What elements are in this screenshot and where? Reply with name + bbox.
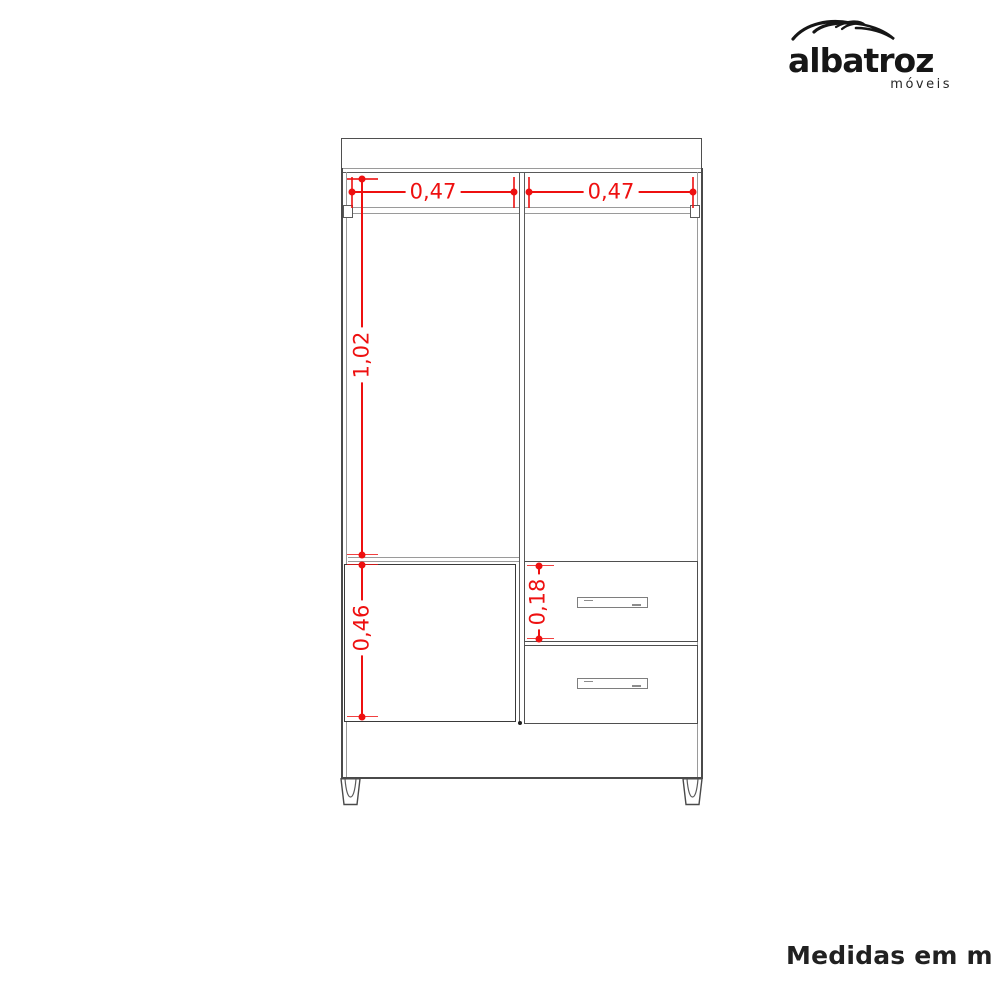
units-caption: Medidas em m (786, 941, 993, 970)
shelf-bottom-line (348, 561, 519, 562)
right-foot (681, 778, 704, 807)
dim-label-right-width: 0,47 (584, 181, 639, 204)
wardrobe-dimension-diagram: albatroz móveis (0, 0, 1000, 1000)
left-rod-bottom-line (348, 213, 519, 214)
brand-logo: albatroz móveis (788, 18, 952, 91)
dim-label-hanging-height: 1,02 (351, 328, 374, 383)
dim-dot (359, 714, 366, 721)
dim-label-left-width: 0,47 (406, 181, 461, 204)
left-wall-outer-line (341, 168, 343, 778)
bird-swoosh-icon (790, 18, 898, 42)
logo-name: albatroz (788, 44, 952, 77)
base-bottom-line (341, 777, 703, 779)
right-wall-outer-line (701, 168, 703, 778)
dim-dot (536, 636, 543, 643)
handle-notch (584, 600, 593, 601)
right-rod-top-line (525, 207, 697, 208)
top-drawer-handle (577, 597, 648, 608)
dim-dot (526, 189, 533, 196)
shelf-top-line (348, 557, 519, 558)
top-panel-bottom-line (341, 168, 702, 169)
dim-dot (511, 189, 518, 196)
dim-label-drawer-height: 0,18 (527, 575, 550, 630)
handle-notch (584, 681, 593, 682)
top-panel (341, 138, 702, 169)
dim-dot (359, 562, 366, 569)
dim-dot (359, 552, 366, 559)
center-divider-left-line (519, 172, 520, 558)
door-pivot-dot (518, 721, 522, 725)
cabinet-ceiling-line (341, 172, 702, 173)
dim-label-door-height: 0,46 (351, 601, 374, 656)
dim-dot (349, 189, 356, 196)
handle-notch (632, 604, 641, 605)
dim-dot (536, 563, 543, 570)
handle-notch (632, 685, 641, 686)
left-rod-top-line (348, 207, 519, 208)
bottom-drawer-handle (577, 678, 648, 689)
left-foot (339, 778, 362, 807)
center-divider-right-line (524, 172, 525, 558)
lower-divider-left-line (519, 558, 520, 723)
dim-dot (690, 189, 697, 196)
right-rod-bottom-line (525, 213, 697, 214)
